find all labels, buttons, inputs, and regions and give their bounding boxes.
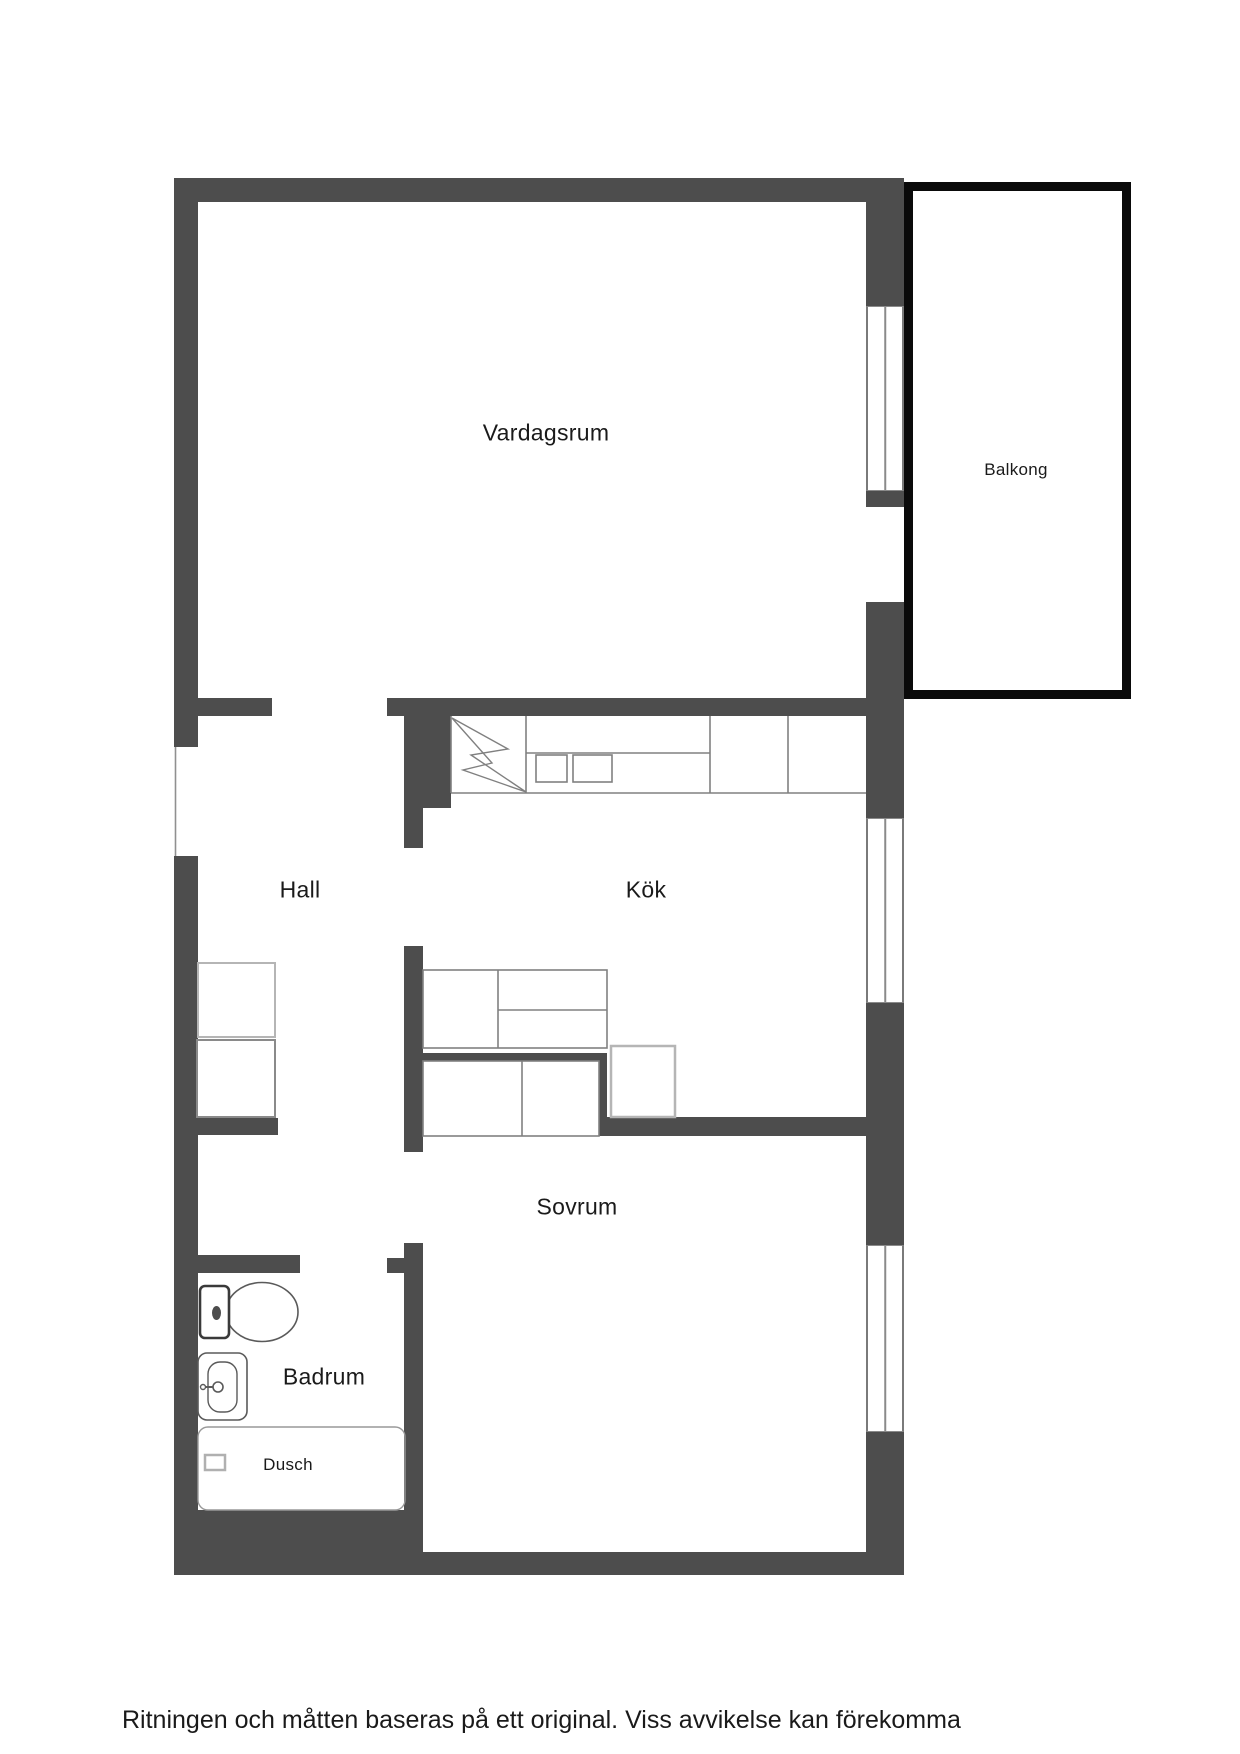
room-label-badrum: Badrum — [283, 1364, 365, 1391]
room-label-balkong: Balkong — [984, 460, 1048, 480]
sink-basin-left — [536, 755, 567, 782]
room-label-kok: Kök — [626, 877, 667, 904]
kitchen-counter — [451, 716, 866, 793]
stove-lightning-symbol — [452, 718, 526, 792]
room-label-vardagsrum: Vardagsrum — [483, 420, 610, 447]
kitchen-lower-cabinets — [423, 970, 607, 1136]
wardrobe-upper — [198, 963, 275, 1037]
disclaimer-text: Ritningen och måtten baseras på ett orig… — [122, 1706, 961, 1735]
room-label-hall: Hall — [280, 877, 321, 904]
fixtures-layer — [0, 0, 1240, 1754]
shower-drain — [205, 1455, 225, 1470]
room-label-sovrum: Sovrum — [536, 1194, 617, 1221]
toilet-symbol — [200, 1283, 298, 1342]
appliance-box — [611, 1046, 675, 1117]
room-label-dusch: Dusch — [263, 1455, 313, 1475]
floor-plan-page: Vardagsrum Balkong Hall Kök Badrum Dusch… — [0, 0, 1240, 1754]
wardrobe-lower — [197, 1040, 275, 1117]
washbasin-symbol — [198, 1353, 247, 1420]
sink-basin-right — [573, 755, 612, 782]
